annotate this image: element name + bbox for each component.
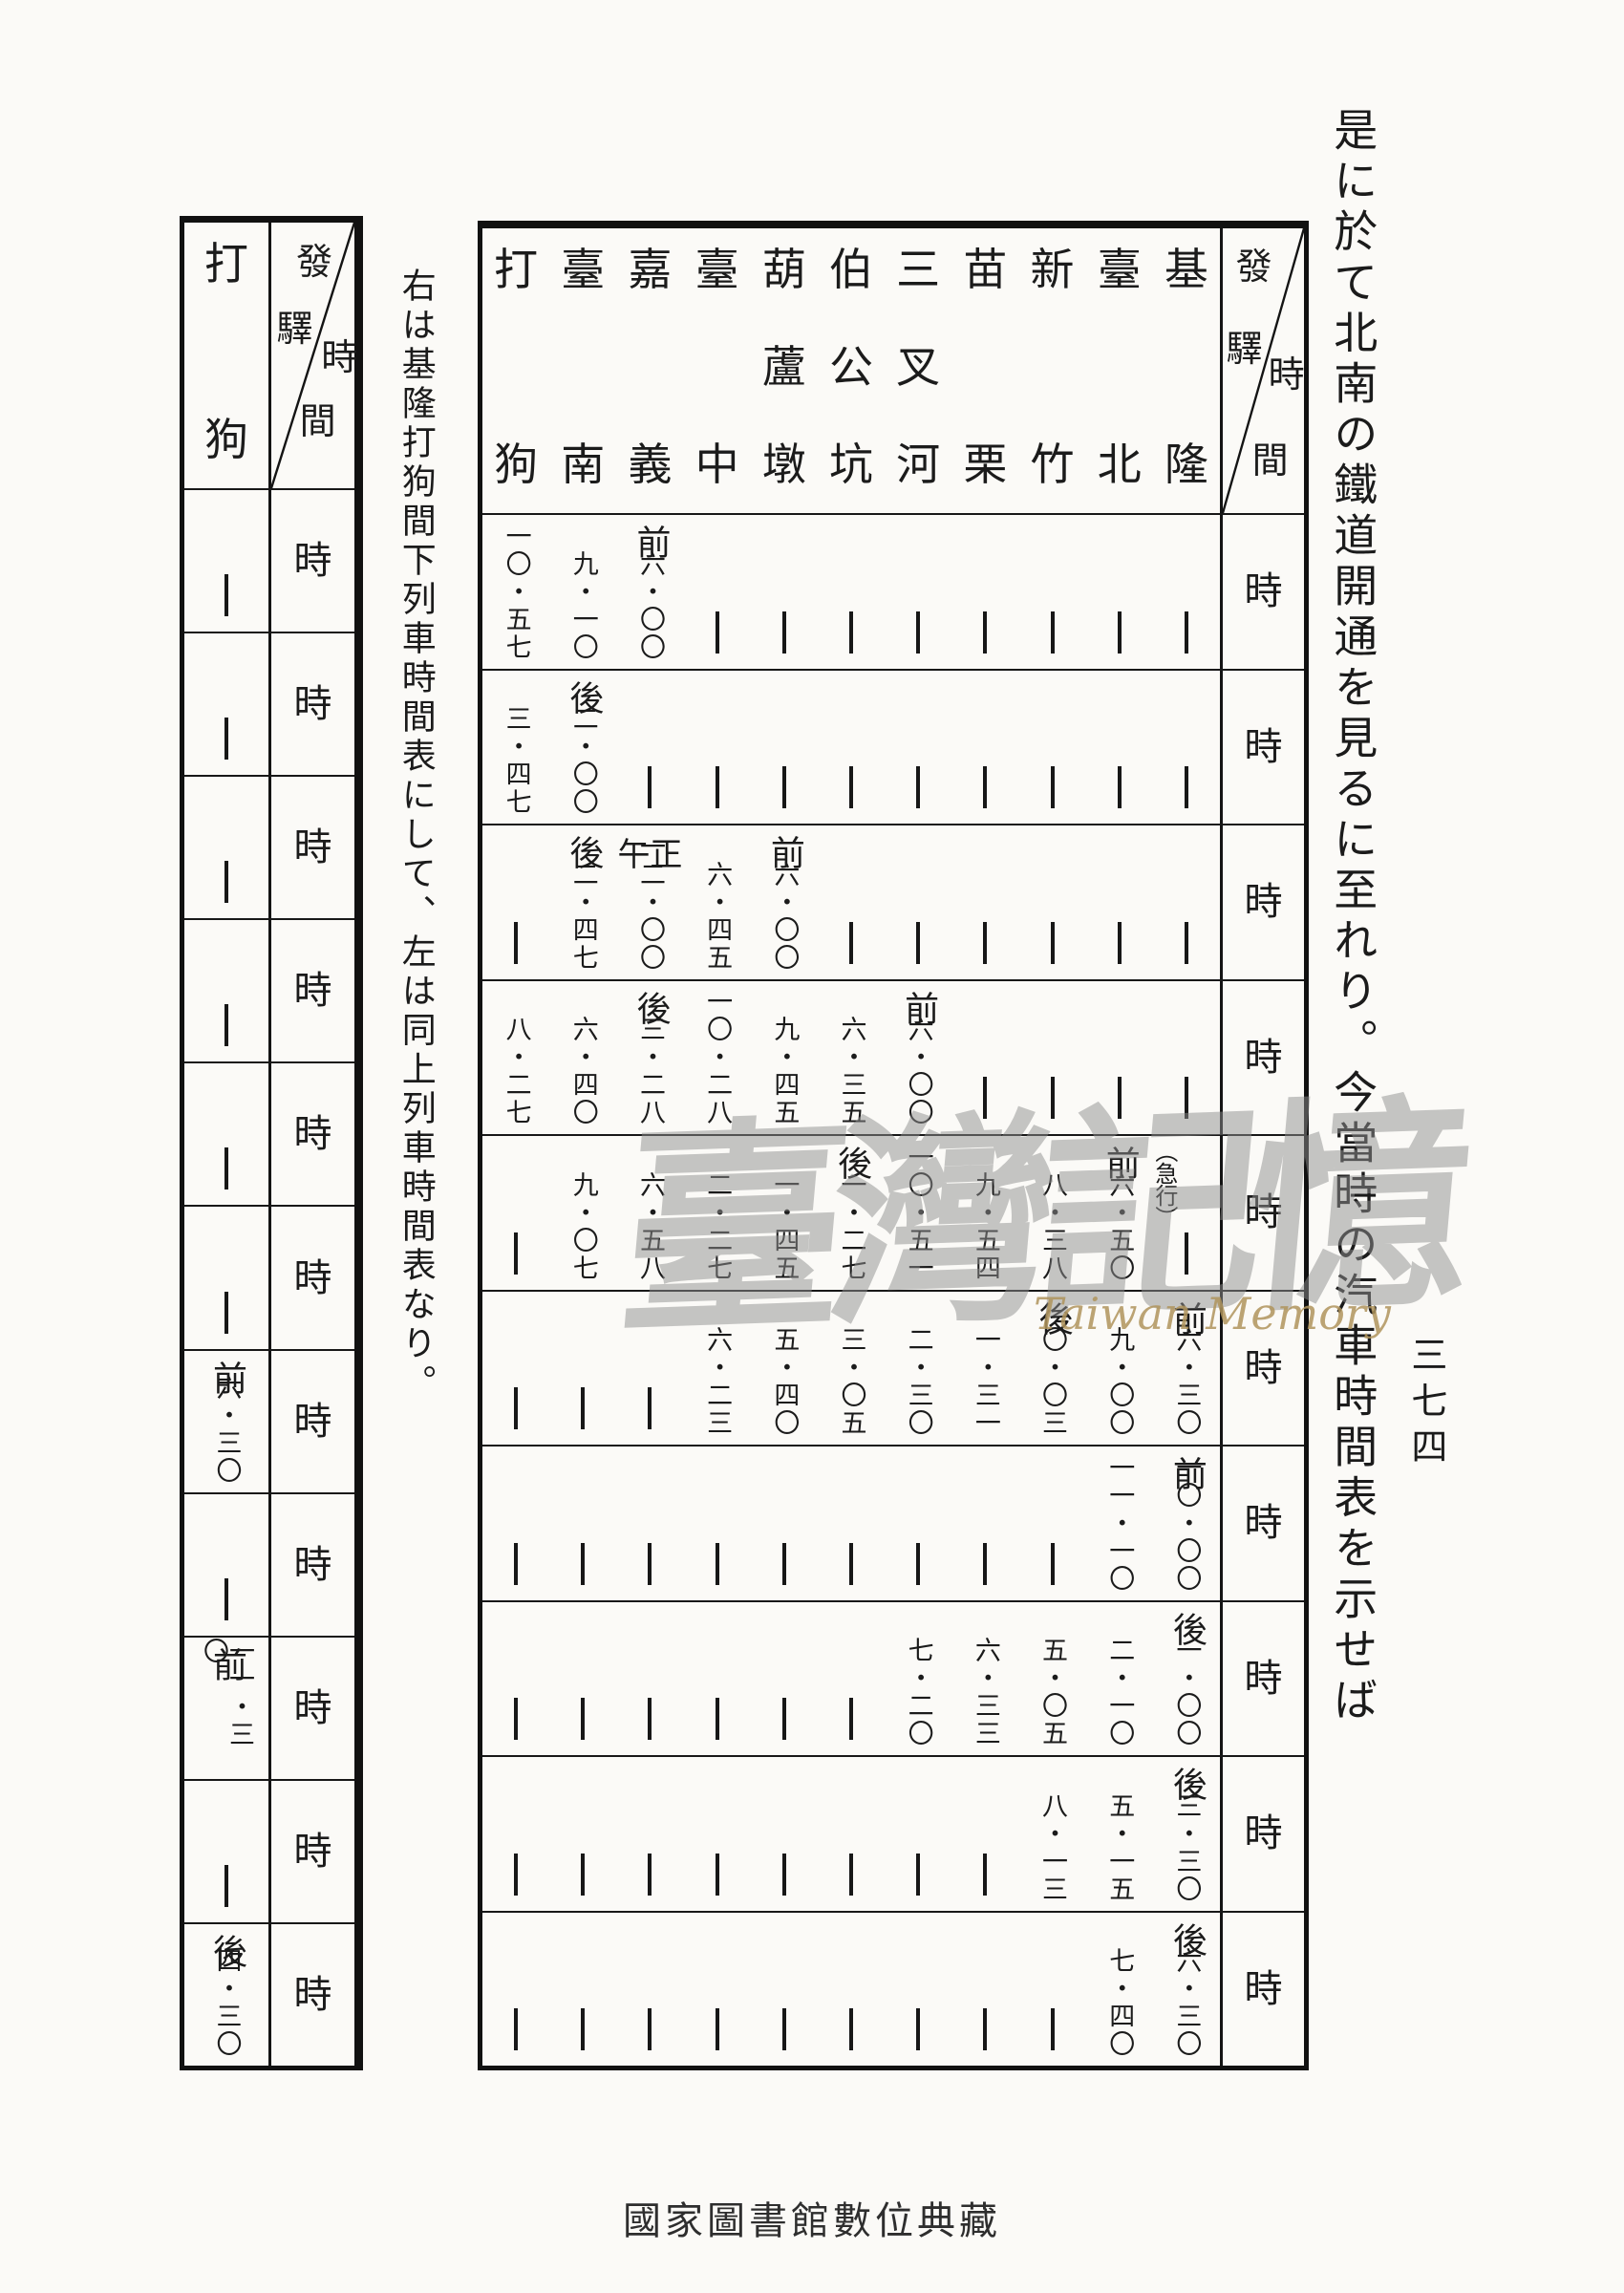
departure-time: 八・三八 [1039,1171,1065,1282]
station-name-char: 北 [1098,442,1142,486]
no-stop-dash [581,1854,585,1896]
station-name-char: 栗 [963,442,1007,486]
no-stop-dash [1118,922,1122,964]
no-stop-dash [1185,1232,1188,1275]
station-name-char: 隆 [1165,442,1208,486]
timetable-cell: 八・三八 [1018,1136,1085,1290]
timetable-cell [885,1913,951,2067]
timetable-cell: 六・二三 [684,1292,751,1446]
station-header: 新竹 [1018,228,1085,513]
corner-label-char: 發 [1236,248,1272,285]
station-name-char: 臺 [561,247,605,291]
no-stop-dash [849,1854,853,1896]
timetable-cell [951,1447,1018,1600]
timetable-cell [818,825,885,979]
up-train-timetable: 打狗發驛時間時時時時時時前六・三〇時時前一一・三〇時時後四・三〇時 [180,216,363,2070]
departure-time: 一二・〇〇 [637,833,663,972]
departure-time: 九・五四 [972,1171,998,1282]
station-name-char: 義 [628,442,672,486]
timetable-cell: 前一〇・〇〇 [1153,1447,1220,1600]
departure-time: 三・二八 [637,1016,663,1126]
train-row: 時 [184,1061,354,1205]
timetable-cell [818,515,885,669]
no-stop-dash [514,2008,518,2050]
no-stop-dash [782,611,786,654]
timetable-cell [184,1781,268,1922]
station-name-char: 基 [1165,247,1208,291]
departure-time: 三・四七 [503,705,529,816]
no-stop-dash [514,1387,518,1429]
timetable-cell: 九・〇〇 [1086,1292,1153,1446]
station-header: 打狗 [184,223,268,488]
no-stop-dash [224,1865,228,1907]
timetable-cell [818,671,885,825]
departure-time: 五・四〇 [771,1326,797,1437]
train-row: 七・二〇六・三三五・〇五二・一〇後一・〇〇時 [482,1600,1304,1756]
no-stop-dash [581,2008,585,2050]
departure-time: 七・四〇 [1106,1947,1132,2058]
timetable-cell: 後四・三〇 [184,1924,268,2066]
no-stop-dash [782,766,786,808]
train-row: 時 [184,775,354,918]
timetable-cell [482,1913,549,2067]
departure-time: 六・二三 [704,1326,730,1437]
hour-unit-cell: 時 [268,920,354,1061]
no-stop-dash [224,1578,228,1620]
no-stop-dash [1185,922,1188,964]
station-name-char: 狗 [494,442,538,486]
timetable-cell [684,1602,751,1756]
no-stop-dash [782,2008,786,2050]
timetable-cell: 九・一〇 [549,515,616,669]
hour-unit-cell: 時 [1220,1136,1304,1290]
no-stop-dash [1185,611,1188,654]
no-stop-dash [983,1077,987,1119]
timetable-cell [818,1913,885,2067]
timetable-cell [684,1447,751,1600]
hour-unit-cell: 時 [268,1781,354,1922]
timetable-cell: 二・三〇 [885,1292,951,1446]
timetable-cell: 三・四七 [482,671,549,825]
departure-time: 六・〇〇 [771,861,797,972]
station-header: 三叉河 [885,228,951,513]
hour-unit-cell: 時 [1220,671,1304,825]
timetable-cell: 後六・三〇 [1153,1913,1220,2067]
timetable-cell [616,1913,683,2067]
timetable-cell [1018,515,1085,669]
timetable-cell [1086,515,1153,669]
table-explanation-text: 右は基隆打狗間下列車時間表にして、左は同上列車時間表なり。 [397,268,434,1452]
hour-unit-label: 時 [294,1259,332,1297]
timetable-cell [951,1913,1018,2067]
station-name-char: 臺 [1098,247,1142,291]
timetable-cell: 一〇・二八 [684,981,751,1135]
no-stop-dash [514,1232,518,1275]
no-stop-dash [224,1292,228,1334]
timetable-cell [616,1292,683,1446]
body-text: 是に於て北南の鐵道開通を見るに至れり。今當時の汽車時間表を示せば [1330,107,1376,1750]
station-name-char: 三 [896,247,940,291]
station-header-row: 打狗臺南嘉義臺中葫蘆墩伯公坑三叉河苗栗新竹臺北基隆發驛時間 [482,228,1304,513]
no-stop-dash [1051,1543,1055,1585]
station-name-char: 墩 [762,442,806,486]
hour-unit-cell: 時 [1220,1447,1304,1600]
no-stop-dash [648,1698,652,1740]
station-name-char: 苗 [963,247,1007,291]
timetable-cell [549,1602,616,1756]
no-stop-dash [224,861,228,903]
timetable-cell [1018,825,1085,979]
no-stop-dash [1051,1077,1055,1119]
timetable-cell [549,1292,616,1446]
station-name-char: 葫 [762,247,806,291]
timetable-cell [751,671,818,825]
station-header: 葫蘆墩 [751,228,818,513]
train-row: 三・四七後二・〇〇時 [482,669,1304,825]
no-stop-dash [983,1543,987,1585]
no-stop-dash [849,766,853,808]
timetable-cell: 八・一三 [1018,1757,1085,1911]
departure-time: 一一・一〇 [1106,1454,1132,1593]
hour-unit-label: 時 [1244,883,1282,921]
no-stop-dash [849,1543,853,1585]
departure-time: 八・二七 [503,1016,529,1126]
timetable-cell [751,515,818,669]
hour-unit-label: 時 [294,1832,332,1871]
departure-time: 一〇・〇〇 [1173,1454,1199,1593]
no-stop-dash [514,1698,518,1740]
timetable-cell [751,1602,818,1756]
timetable-cell [751,1447,818,1600]
timetable-cell [482,825,549,979]
timetable-cell [1153,825,1220,979]
train-row: 前一一・三〇時 [184,1636,354,1779]
no-stop-dash [514,1543,518,1585]
timetable-cell [1086,825,1153,979]
timetable-cell [1018,1913,1085,2067]
timetable-cell [818,1602,885,1756]
train-row: 前六・三〇時 [184,1349,354,1492]
timetable-cell [951,1757,1018,1911]
station-name-char: 打 [204,242,248,286]
station-name-char: 叉 [896,345,940,389]
train-row: 六・二三五・四〇三・〇五二・三〇一・三一後〇・〇三九・〇〇前六・三〇時 [482,1290,1304,1446]
station-name-char: 中 [695,442,739,486]
timetable-cell: 一・四五 [751,1136,818,1290]
station-header: 嘉義 [616,228,683,513]
timetable-cell [184,777,268,918]
hour-unit-cell: 時 [268,1924,354,2066]
timetable-cell [616,1447,683,1600]
timetable-cell: 九・五四 [951,1136,1018,1290]
no-stop-dash [983,1854,987,1896]
no-stop-dash [648,1543,652,1585]
timetable-cell [616,1757,683,1911]
timetable-cell: 五・一五 [1086,1757,1153,1911]
timetable-cell [1086,671,1153,825]
timetable-cell [482,1447,549,1600]
hour-unit-cell: 時 [1220,515,1304,669]
timetable-cell [885,825,951,979]
hour-unit-label: 時 [294,1403,332,1441]
departure-time: 六・三三 [972,1637,998,1747]
timetable-cell [684,671,751,825]
timetable-cell: 後三・三〇 [1153,1757,1220,1911]
station-header: 伯公坑 [818,228,885,513]
train-row: 八・一三五・一五後三・三〇時 [482,1755,1304,1911]
no-stop-dash [782,1698,786,1740]
no-stop-dash [1185,766,1188,808]
timetable-cell [1018,671,1085,825]
train-row: 時 [184,1779,354,1922]
timetable-cell [818,1447,885,1600]
departure-time: 二・一〇 [1106,1637,1132,1747]
scanned-book-page: 打狗發驛時間時時時時時時前六・三〇時時前一一・三〇時時後四・三〇時 右は基隆打狗… [0,0,1624,2293]
station-name-char: 公 [829,345,873,389]
station-name-char: 竹 [1031,442,1075,486]
hour-unit-label: 時 [1244,1504,1282,1542]
no-stop-dash [1051,611,1055,654]
timetable-cell: 六・四五 [684,825,751,979]
no-stop-dash [716,611,719,654]
hour-unit-label: 時 [294,542,332,580]
departure-time: 一〇・五七 [503,523,529,661]
station-name-char: 河 [896,442,940,486]
timetable-cell: 前六・三〇 [1153,1292,1220,1446]
departure-time: 九・四五 [771,1016,797,1126]
timetable-cell: 八・二七 [482,981,549,1135]
timetable-cell: （急行） [1153,1136,1220,1290]
hour-unit-label: 時 [294,1115,332,1153]
departure-time: 九・〇七 [570,1171,596,1282]
departure-time: 六・五〇 [1106,1171,1132,1282]
no-stop-dash [1185,1077,1188,1119]
timetable-cell [951,515,1018,669]
timetable-cell [482,1602,549,1756]
no-stop-dash [782,1543,786,1585]
timetable-cell [1153,981,1220,1135]
departure-time: 一一・三〇 [201,1638,252,1771]
no-stop-dash [716,766,719,808]
timetable-cell: 前六・〇〇 [616,515,683,669]
departure-time: 九・〇〇 [1106,1326,1132,1437]
departure-time: 六・四〇 [570,1016,596,1126]
hour-unit-cell: 時 [268,1494,354,1636]
departure-time: 三・三〇 [1173,1792,1199,1903]
timetable-cell: 九・四五 [751,981,818,1135]
timetable-cell: 一一・一〇 [1086,1447,1153,1600]
timetable-cell: 五・四〇 [751,1292,818,1446]
no-stop-dash [716,2008,719,2050]
hour-unit-cell: 時 [1220,825,1304,979]
no-stop-dash [1051,922,1055,964]
departure-time: 〇・〇三 [1039,1326,1065,1437]
hour-unit-label: 時 [294,828,332,867]
timetable-cell: 九・〇七 [549,1136,616,1290]
train-row: 七・四〇後六・三〇時 [482,1911,1304,2067]
no-stop-dash [916,766,920,808]
hour-unit-cell: 時 [268,1351,354,1492]
departure-time: 六・三五 [838,1016,864,1126]
station-name-char: 伯 [829,247,873,291]
timetable-cell: 六・五八 [616,1136,683,1290]
station-name-char: 嘉 [628,247,672,291]
timetable-cell [184,920,268,1061]
departure-time: 二・〇〇 [570,705,596,816]
no-stop-dash [716,1543,719,1585]
timetable-cell [885,1757,951,1911]
timetable-cell: 三・〇五 [818,1292,885,1446]
hour-unit-cell: 時 [1220,981,1304,1135]
no-stop-dash [916,1543,920,1585]
departure-time: 二・二七 [704,1171,730,1282]
station-name-char: 打 [494,247,538,291]
departure-time: 五・〇五 [1039,1637,1065,1747]
timetable-cell: 前六・〇〇 [885,981,951,1135]
hour-unit-label: 時 [1244,1970,1282,2008]
station-header: 臺中 [684,228,751,513]
corner-label-char: 時 [1269,356,1305,393]
timetable-cell: 後〇・〇三 [1018,1292,1085,1446]
timetable-cell: 一・三一 [951,1292,1018,1446]
station-name-char: 坑 [829,442,873,486]
station-header-row: 打狗發驛時間 [184,223,354,488]
timetable-cell: 午正一二・〇〇 [616,825,683,979]
train-row: 時 [184,1205,354,1348]
departure-time: 四・三〇 [214,1947,240,2058]
timetable-cell [482,1292,549,1446]
no-stop-dash [1118,611,1122,654]
timetable-cell [684,1913,751,2067]
train-row: 九・〇七六・五八二・二七一・四五後一・二七一〇・五一九・五四八・三八前六・五〇（… [482,1134,1304,1290]
corner-label-char: 間 [300,403,336,439]
timetable-cell: 七・二〇 [885,1602,951,1756]
station-name-char: 臺 [695,247,739,291]
timetable-cell [818,1757,885,1911]
timetable-cell [184,1207,268,1348]
timetable-cell [1018,981,1085,1135]
no-stop-dash [983,922,987,964]
timetable-cell [885,1447,951,1600]
timetable-cell [616,671,683,825]
departure-time: 六・三〇 [214,1374,240,1485]
departure-time: 六・四五 [704,861,730,972]
no-stop-dash [1051,2008,1055,2050]
hour-unit-cell: 時 [268,1063,354,1205]
departure-time: 七・二〇 [906,1637,931,1747]
hour-unit-label: 時 [294,1976,332,2014]
no-stop-dash [581,1543,585,1585]
hour-unit-cell: 時 [268,490,354,632]
no-stop-dash [849,611,853,654]
timetable-cell: 後一・〇〇 [1153,1602,1220,1756]
hour-unit-label: 時 [294,685,332,723]
no-stop-dash [849,2008,853,2050]
timetable-cell [951,825,1018,979]
timetable-cell [549,1447,616,1600]
timetable-cell [1086,981,1153,1135]
timetable-cell: 後一・二七 [818,1136,885,1290]
no-stop-dash [916,2008,920,2050]
departure-station-time-corner-cell: 發驛時間 [1220,228,1304,513]
hour-unit-label: 時 [1244,1193,1282,1232]
timetable-cell [1153,671,1220,825]
no-stop-dash [1118,766,1122,808]
train-row: 時 [184,1492,354,1636]
hour-unit-label: 時 [1244,1814,1282,1853]
corner-label-char: 驛 [276,311,312,347]
hour-unit-cell: 時 [1220,1913,1304,2067]
train-row: 一一・一〇前一〇・〇〇時 [482,1445,1304,1600]
no-stop-dash [916,922,920,964]
train-row: 時 [184,488,354,632]
hour-unit-label: 時 [1244,1660,1282,1698]
hour-unit-cell: 時 [268,1638,354,1779]
timetable-cell [885,515,951,669]
timetable-cell [951,671,1018,825]
no-stop-dash [983,766,987,808]
timetable-cell [549,1757,616,1911]
corner-label-char: 發 [296,244,332,280]
hour-unit-cell: 時 [268,633,354,775]
timetable-cell [184,1494,268,1636]
departure-time: 六・三〇 [1173,1947,1199,2058]
no-stop-dash [581,1698,585,1740]
no-stop-dash [849,1698,853,1740]
timetable-cell: 六・四〇 [549,981,616,1135]
express-note: （急行） [1153,1140,1176,1228]
timetable-cell: 一〇・五七 [482,515,549,669]
no-stop-dash [1051,766,1055,808]
no-stop-dash [849,922,853,964]
no-stop-dash [716,1698,719,1740]
timetable-cell: 六・三三 [951,1602,1018,1756]
timetable-cell [482,1757,549,1911]
hour-unit-cell: 時 [268,1207,354,1348]
departure-time: 二・三〇 [906,1326,931,1437]
station-header: 臺北 [1086,228,1153,513]
hour-unit-cell: 時 [268,777,354,918]
departure-time: 六・三〇 [1173,1326,1199,1437]
no-stop-dash [983,2008,987,2050]
timetable-cell: 五・〇五 [1018,1602,1085,1756]
station-name-char: 南 [561,442,605,486]
no-stop-dash [224,574,228,616]
hour-unit-label: 時 [1244,728,1282,766]
no-stop-dash [983,611,987,654]
departure-station-time-corner-cell: 發驛時間 [268,223,354,488]
timetable-cell: 一〇・五一 [885,1136,951,1290]
timetable-cell: 二・一〇 [1086,1602,1153,1756]
hour-unit-label: 時 [1244,572,1282,611]
timetable-cell [1153,515,1220,669]
timetable-cell: 前一一・三〇 [184,1638,268,1779]
station-header: 打狗 [482,228,549,513]
departure-time: 一・三一 [972,1326,998,1437]
no-stop-dash [224,718,228,760]
station-name-char: 蘆 [762,345,806,389]
no-stop-dash [1118,1077,1122,1119]
no-stop-dash [916,611,920,654]
timetable-cell [184,490,268,632]
hour-unit-label: 時 [294,1546,332,1584]
hour-unit-cell: 時 [1220,1757,1304,1911]
no-stop-dash [514,922,518,964]
timetable-cell [885,671,951,825]
departure-time: 五・一五 [1106,1792,1132,1903]
timetable-cell: 後三・二八 [616,981,683,1135]
timetable-cell [684,1757,751,1911]
